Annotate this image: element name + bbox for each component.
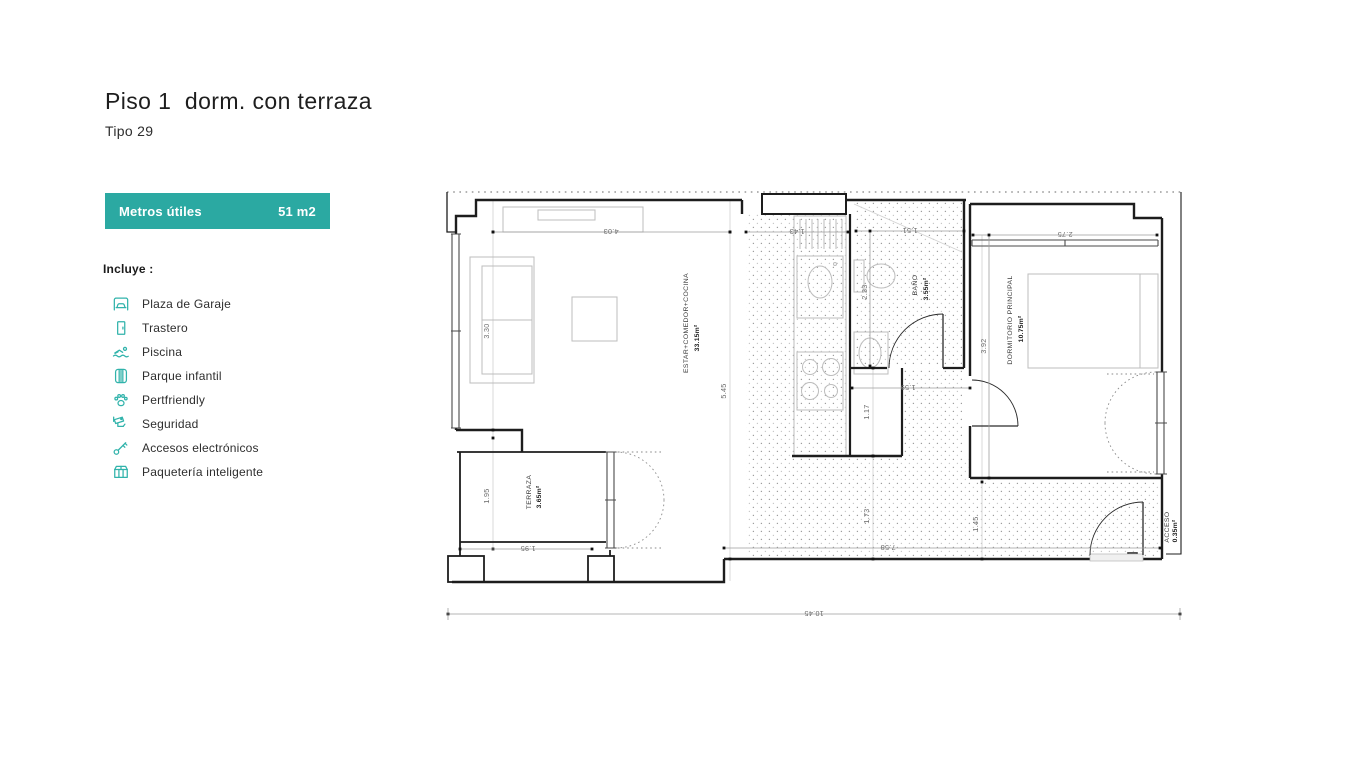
parcel-icon: [111, 462, 131, 482]
include-item-security: Seguridad: [111, 412, 263, 436]
include-item-garage: Plaza de Garaje: [111, 292, 263, 316]
include-item-storage: Trastero: [111, 316, 263, 340]
bed: [1028, 274, 1158, 368]
include-item-electronic-access: Accesos electrónicos: [111, 436, 263, 460]
include-label: Plaza de Garaje: [142, 297, 231, 311]
floor-plan: 4.03 1.43 1.51 2.75: [440, 186, 1185, 631]
room-label-bath: BAÑO: [910, 275, 919, 296]
room-label-bedroom: DORMITORIO PRINCIPAL: [1007, 275, 1014, 364]
page-title: Piso 1 dorm. con terraza: [105, 88, 372, 115]
dimension-label: 4.03: [603, 227, 618, 236]
dim-bedroom-depth: 3.92: [979, 234, 990, 480]
dining-table: [572, 297, 617, 341]
dim-terrace-width: 1.95: [459, 544, 594, 553]
living-window: [451, 234, 461, 428]
dim-living-depth: 5.45: [719, 231, 731, 561]
dimension-label: 7.58: [880, 543, 895, 552]
dimension-label: 3.30: [482, 323, 491, 338]
dim-terrace-depth: 1.95: [482, 437, 494, 551]
dim-total-width: 10.45: [447, 608, 1182, 620]
shaft: [762, 194, 846, 214]
sofa: [470, 257, 534, 383]
sideboard: [503, 207, 643, 232]
dimension-label: 1.59: [900, 383, 915, 392]
metrics-badge: Metros útiles 51 m2: [105, 193, 330, 229]
dim-closet-depth: 1.17: [862, 367, 874, 458]
terrace-pillar: [448, 556, 484, 582]
room-label-living: ESTAR+COMEDOR+COCINA: [683, 273, 690, 373]
page-subtitle: Tipo 29: [105, 123, 372, 139]
include-label: Trastero: [142, 321, 188, 335]
includes-heading: Incluye :: [103, 262, 263, 276]
paw-icon: [111, 390, 131, 410]
room-area-bedroom: 10.75m²: [1018, 315, 1025, 342]
include-label: Accesos electrónicos: [142, 441, 259, 455]
dimension-label: 3.92: [979, 338, 988, 353]
bedroom-french-window: [1105, 372, 1167, 474]
camera-icon: [111, 414, 131, 434]
dimension-label: 5.45: [719, 383, 728, 398]
terrace-french-door: [605, 450, 664, 550]
room-area-living: 33.15m²: [694, 324, 701, 351]
room-area-terrace: 3.65m²: [536, 485, 543, 508]
dimension-label: 1.45: [971, 516, 980, 531]
dimension-label: 1.95: [520, 544, 535, 553]
bedroom-door: [972, 380, 1018, 426]
dimension-label: 2.75: [1057, 230, 1072, 239]
dimension-label: 10.45: [804, 609, 824, 618]
metrics-value: 51 m2: [278, 204, 316, 219]
page: Piso 1 dorm. con terraza Tipo 29 Metros …: [0, 0, 1366, 768]
playground-icon: [111, 366, 131, 386]
room-area-bath: 3.55m²: [923, 277, 930, 300]
dim-living-window: 3.30: [482, 231, 494, 432]
include-label: Seguridad: [142, 417, 199, 431]
include-item-pool: Piscina: [111, 340, 263, 364]
storage-icon: [111, 318, 131, 338]
dimension-label: 2.33: [860, 284, 869, 299]
dimension-label: 1.43: [789, 227, 804, 236]
pool-icon: [111, 342, 131, 362]
room-label-terrace: TERRAZA: [526, 475, 533, 510]
dimension-label: 1.51: [902, 226, 917, 235]
include-label: Piscina: [142, 345, 182, 359]
include-label: Paquetería inteligente: [142, 465, 263, 479]
terrace-pillar: [588, 556, 614, 582]
dimension-label: 1.17: [862, 404, 871, 419]
metrics-label: Metros útiles: [119, 204, 202, 219]
dim-bedroom-width: 2.75: [972, 230, 1159, 239]
floor-plan-svg: 4.03 1.43 1.51 2.75: [440, 186, 1185, 631]
garage-icon: [111, 294, 131, 314]
room-label-access: ACCESO: [1164, 511, 1171, 542]
include-item-petfriendly: Pertfriendly: [111, 388, 263, 412]
dimension-label: 1.73: [862, 508, 871, 523]
room-area-access: 0.35m²: [1172, 519, 1179, 542]
include-item-smart-parcel: Paquetería inteligente: [111, 460, 263, 484]
plan-header: Piso 1 dorm. con terraza Tipo 29: [105, 88, 372, 139]
includes-section: Incluye : Plaza de Garaje Trastero Pisci…: [103, 262, 263, 484]
bedroom-top-window: [972, 240, 1158, 246]
dimension-label: 1.95: [482, 488, 491, 503]
key-icon: [111, 438, 131, 458]
include-label: Parque infantil: [142, 369, 222, 383]
include-label: Pertfriendly: [142, 393, 205, 407]
include-item-playground: Parque infantil: [111, 364, 263, 388]
includes-list: Plaza de Garaje Trastero Piscina Parque …: [103, 292, 263, 484]
